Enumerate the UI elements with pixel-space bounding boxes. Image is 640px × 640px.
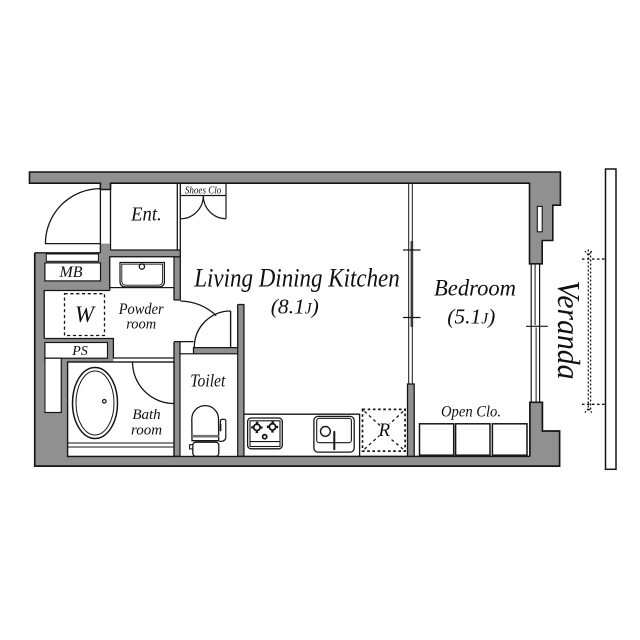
svg-text:Bath: Bath [132, 407, 160, 423]
svg-text:Powder: Powder [118, 301, 165, 318]
svg-text:Open Clo.: Open Clo. [441, 403, 501, 420]
svg-text:Living Dining Kitchen: Living Dining Kitchen [193, 263, 399, 293]
svg-text:Shoes Clo: Shoes Clo [185, 185, 222, 196]
svg-text:room: room [131, 423, 162, 439]
svg-text:MB: MB [58, 264, 82, 281]
svg-text:(5.1J): (5.1J) [447, 305, 495, 329]
svg-text:room: room [126, 317, 156, 333]
svg-text:Ent.: Ent. [130, 203, 161, 225]
svg-text:Bedroom: Bedroom [434, 276, 516, 302]
svg-text:W: W [75, 302, 96, 327]
svg-text:Toilet: Toilet [190, 370, 226, 390]
svg-text:R: R [377, 420, 390, 441]
svg-text:Veranda: Veranda [551, 281, 587, 380]
svg-text:(8.1J): (8.1J) [271, 295, 319, 319]
svg-text:PS: PS [71, 344, 88, 359]
